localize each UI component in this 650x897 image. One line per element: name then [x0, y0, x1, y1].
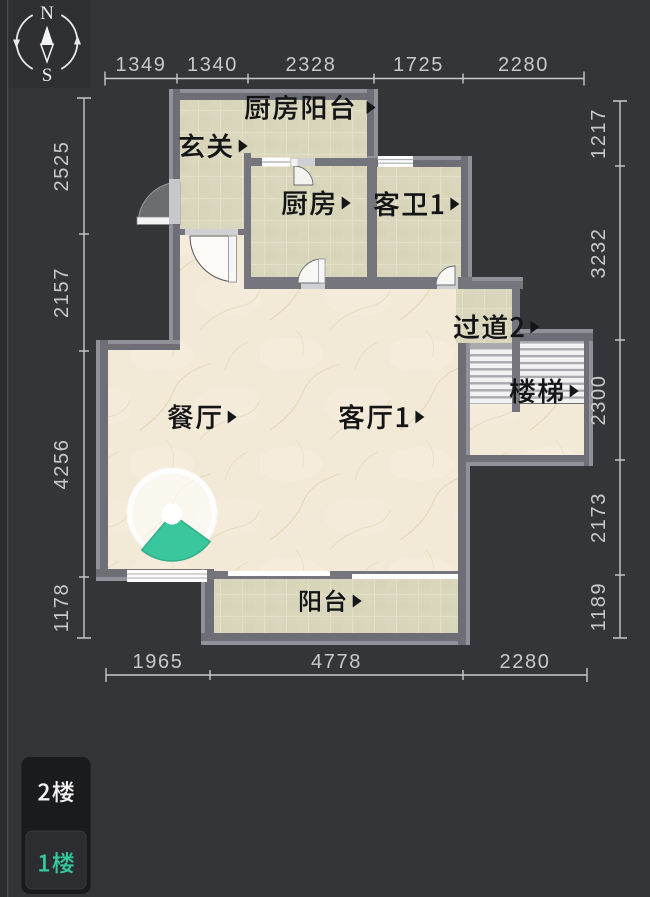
- svg-text:4778: 4778: [311, 651, 362, 673]
- svg-text:2525: 2525: [51, 141, 73, 192]
- svg-text:S: S: [42, 65, 53, 86]
- svg-text:2280: 2280: [500, 651, 551, 673]
- svg-text:2328: 2328: [286, 54, 337, 76]
- svg-text:2157: 2157: [51, 267, 73, 318]
- svg-text:1189: 1189: [588, 582, 610, 631]
- svg-text:2173: 2173: [588, 492, 610, 543]
- svg-text:2300: 2300: [588, 375, 610, 426]
- svg-text:1349: 1349: [116, 54, 167, 76]
- svg-text:3232: 3232: [588, 228, 610, 279]
- svg-text:1178: 1178: [51, 583, 73, 632]
- svg-text:4256: 4256: [51, 439, 73, 490]
- svg-text:1725: 1725: [393, 54, 444, 76]
- svg-text:1340: 1340: [187, 54, 238, 76]
- svg-text:2280: 2280: [498, 54, 549, 76]
- svg-text:N: N: [40, 3, 54, 24]
- svg-text:1965: 1965: [133, 651, 184, 673]
- svg-text:1217: 1217: [588, 108, 610, 159]
